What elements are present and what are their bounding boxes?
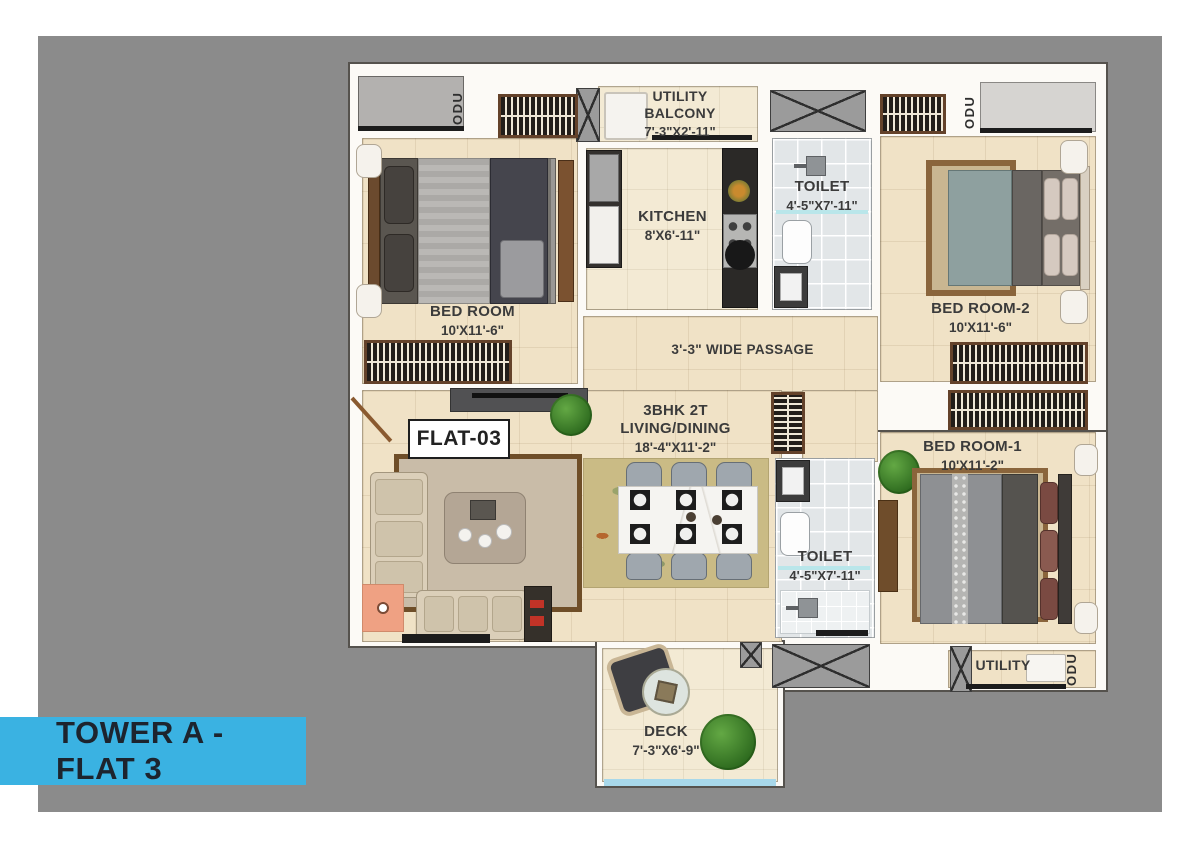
bedroom1-blanket — [1002, 474, 1038, 624]
shower-tray-bottom — [780, 590, 870, 634]
bedroom1-runner — [952, 474, 968, 624]
living-dining-label: 3BHK 2T LIVING/DINING 18'-4"X11'-2" — [608, 402, 743, 456]
bedroom2-nightstand-bottom — [1060, 290, 1088, 324]
odu-label-top-left: ODU — [450, 84, 472, 132]
bedroom1-dresser — [878, 500, 898, 592]
deck-label: DECK 7'-3"X6'-9" — [616, 723, 716, 759]
corridor-floor — [802, 390, 878, 462]
bedroom-throw — [500, 240, 544, 298]
wardrobe-bedroom-bottom — [364, 340, 512, 384]
place-setting-5 — [676, 524, 696, 544]
dining-chair-6 — [716, 552, 752, 580]
bedroom2-name: BED ROOM-2 — [908, 300, 1053, 318]
duct-balcony-left — [576, 88, 600, 142]
toilet-top-label: TOILET 4'-5"X7'-11" — [772, 178, 872, 214]
bedroom1-pillow-3 — [1040, 578, 1058, 620]
bedroom2-pillow-3 — [1044, 234, 1060, 276]
toilet-bottom-label: TOILET 4'-5"X7'-11" — [775, 548, 875, 584]
bedroom2-nightstand-top — [1060, 140, 1088, 174]
table-centerpiece-2 — [712, 515, 722, 525]
sofa-left-cushion-2 — [375, 521, 423, 557]
odu-label-top-right: ODU — [962, 88, 984, 136]
coffee-cup-3 — [496, 524, 512, 540]
flat-number-badge: FLAT-03 — [408, 419, 510, 459]
passage-name: 3'-3" WIDE PASSAGE — [665, 342, 820, 358]
sofa-left-cushion-1 — [375, 479, 423, 515]
bedroom1-pillow-1 — [1040, 482, 1058, 524]
entrance-mat — [402, 634, 490, 643]
bedroom-nightstand-top — [356, 144, 382, 178]
bedroom2-pillow-4 — [1062, 234, 1078, 276]
odu-platform-edge-top-left — [358, 126, 464, 131]
balcony-strip-top-right — [980, 82, 1096, 132]
place-setting-6 — [722, 524, 742, 544]
title-banner: TOWER A - FLAT 3 — [0, 717, 306, 785]
deck-name: DECK — [616, 723, 716, 741]
deck-edge-strip — [604, 779, 776, 786]
wardrobe-bedroom2-top — [880, 94, 946, 134]
bedroom-duvet — [418, 158, 490, 304]
duct-bottom-center — [772, 644, 870, 688]
duct-above-toilet-top — [770, 90, 866, 132]
kitchen-label: KITCHEN 8'X6'-11" — [600, 208, 745, 244]
bedroom1-label: BED ROOM-1 10'X11'-2" — [900, 438, 1045, 474]
coffee-cup-1 — [458, 528, 472, 542]
bedroom2-headboard — [1080, 166, 1090, 290]
utility-threshold — [966, 684, 1066, 689]
utility-label: UTILITY — [958, 657, 1048, 674]
wc-top — [782, 220, 812, 264]
toilet-top-name: TOILET — [772, 178, 872, 196]
wardrobe-bedroom1-top — [948, 390, 1088, 430]
deck-table-deco — [654, 680, 678, 704]
bedroom1-headboard — [1058, 474, 1072, 624]
toilet-bottom-dims: 4'-5"X7'-11" — [775, 568, 875, 584]
shower-head-bottom — [798, 598, 818, 618]
floor-plan-page: ODU ODU ODU UTILITY BALCONY 7'-3"X2'-11"… — [0, 0, 1200, 850]
odu-label-bottom-right: ODU — [1064, 646, 1086, 692]
tv-screen — [472, 393, 568, 398]
wardrobe-bedroom-top — [498, 94, 578, 138]
odu-platform-top-left — [358, 76, 464, 128]
utility-balcony-label: UTILITY BALCONY 7'-3"X2'-11" — [625, 88, 735, 139]
bedroom1-name: BED ROOM-1 — [900, 438, 1045, 456]
toilet-bottom-name: TOILET — [775, 548, 875, 566]
side-stool-deco — [377, 602, 389, 614]
kitchen-fridge — [589, 154, 619, 202]
place-setting-3 — [722, 490, 742, 510]
kitchen-sink-pan — [725, 240, 755, 270]
balcony-edge-top-right — [980, 128, 1092, 133]
shower-head-top — [806, 156, 826, 176]
bedroom2-dims: 10'X11'-6" — [908, 320, 1053, 336]
deck-dims: 7'-3"X6'-9" — [616, 743, 716, 759]
bedroom-dims: 10'X11'-6" — [400, 323, 545, 339]
living-dining-dims: 18'-4"X11'-2" — [608, 440, 743, 456]
bedroom1-nightstand-bottom — [1074, 602, 1098, 634]
sofa-bottom-cushion-1 — [424, 596, 454, 632]
bedroom-pillow-1 — [384, 166, 414, 224]
living-dining-line2: LIVING/DINING — [608, 420, 743, 438]
bedroom-label: BED ROOM 10'X11'-6" — [400, 303, 545, 339]
bedroom1-nightstand-top — [1074, 444, 1098, 476]
bedroom2-duvet — [948, 170, 1012, 286]
table-centerpiece-1 — [686, 512, 696, 522]
living-dining-line1: 3BHK 2T — [608, 402, 743, 420]
bedroom-nightstand-bottom — [356, 284, 382, 318]
place-setting-1 — [630, 490, 650, 510]
bedroom-name: BED ROOM — [400, 303, 545, 321]
bedroom-pillow-2 — [384, 234, 414, 292]
washbasin-top-bowl — [780, 273, 802, 301]
bedroom1-pillow-2 — [1040, 530, 1058, 572]
bedroom2-pillow-2 — [1062, 178, 1078, 220]
passage-label: 3'-3" WIDE PASSAGE — [665, 342, 820, 358]
coffee-cup-2 — [478, 534, 492, 548]
bedroom2-pillow-1 — [1044, 178, 1060, 220]
kitchen-flower-deco — [728, 180, 750, 202]
magazine-rack-deco-2 — [530, 616, 544, 626]
shoe-cabinet-passage — [771, 392, 805, 454]
wardrobe-bedroom2-bottom — [950, 342, 1088, 384]
bedroom2-blanket — [1012, 170, 1042, 286]
magazine-rack — [524, 586, 552, 642]
sofa-bottom-cushion-3 — [492, 596, 522, 632]
bedroom2-label: BED ROOM-2 10'X11'-6" — [908, 300, 1053, 336]
plant-living — [550, 394, 592, 436]
dining-chair-5 — [671, 552, 707, 580]
utility-balcony-name: UTILITY BALCONY — [625, 88, 735, 122]
washbasin-bottom-bowl — [782, 467, 804, 495]
magazine-rack-deco-1 — [530, 600, 544, 608]
dining-chair-4 — [626, 552, 662, 580]
bedroom-door-leaf — [558, 160, 574, 302]
toilet-top-dims: 4'-5"X7'-11" — [772, 198, 872, 214]
place-setting-2 — [676, 490, 696, 510]
coffee-table-tray — [470, 500, 496, 520]
bedroom1-dims: 10'X11'-2" — [900, 458, 1045, 474]
place-setting-4 — [630, 524, 650, 544]
utility-balcony-dims: 7'-3"X2'-11" — [625, 124, 735, 140]
duct-deck-corner — [740, 642, 762, 668]
utility-name: UTILITY — [958, 657, 1048, 674]
toilet-bottom-threshold — [816, 630, 868, 636]
kitchen-name: KITCHEN — [600, 208, 745, 226]
sofa-bottom-cushion-2 — [458, 596, 488, 632]
kitchen-dims: 8'X6'-11" — [600, 228, 745, 244]
